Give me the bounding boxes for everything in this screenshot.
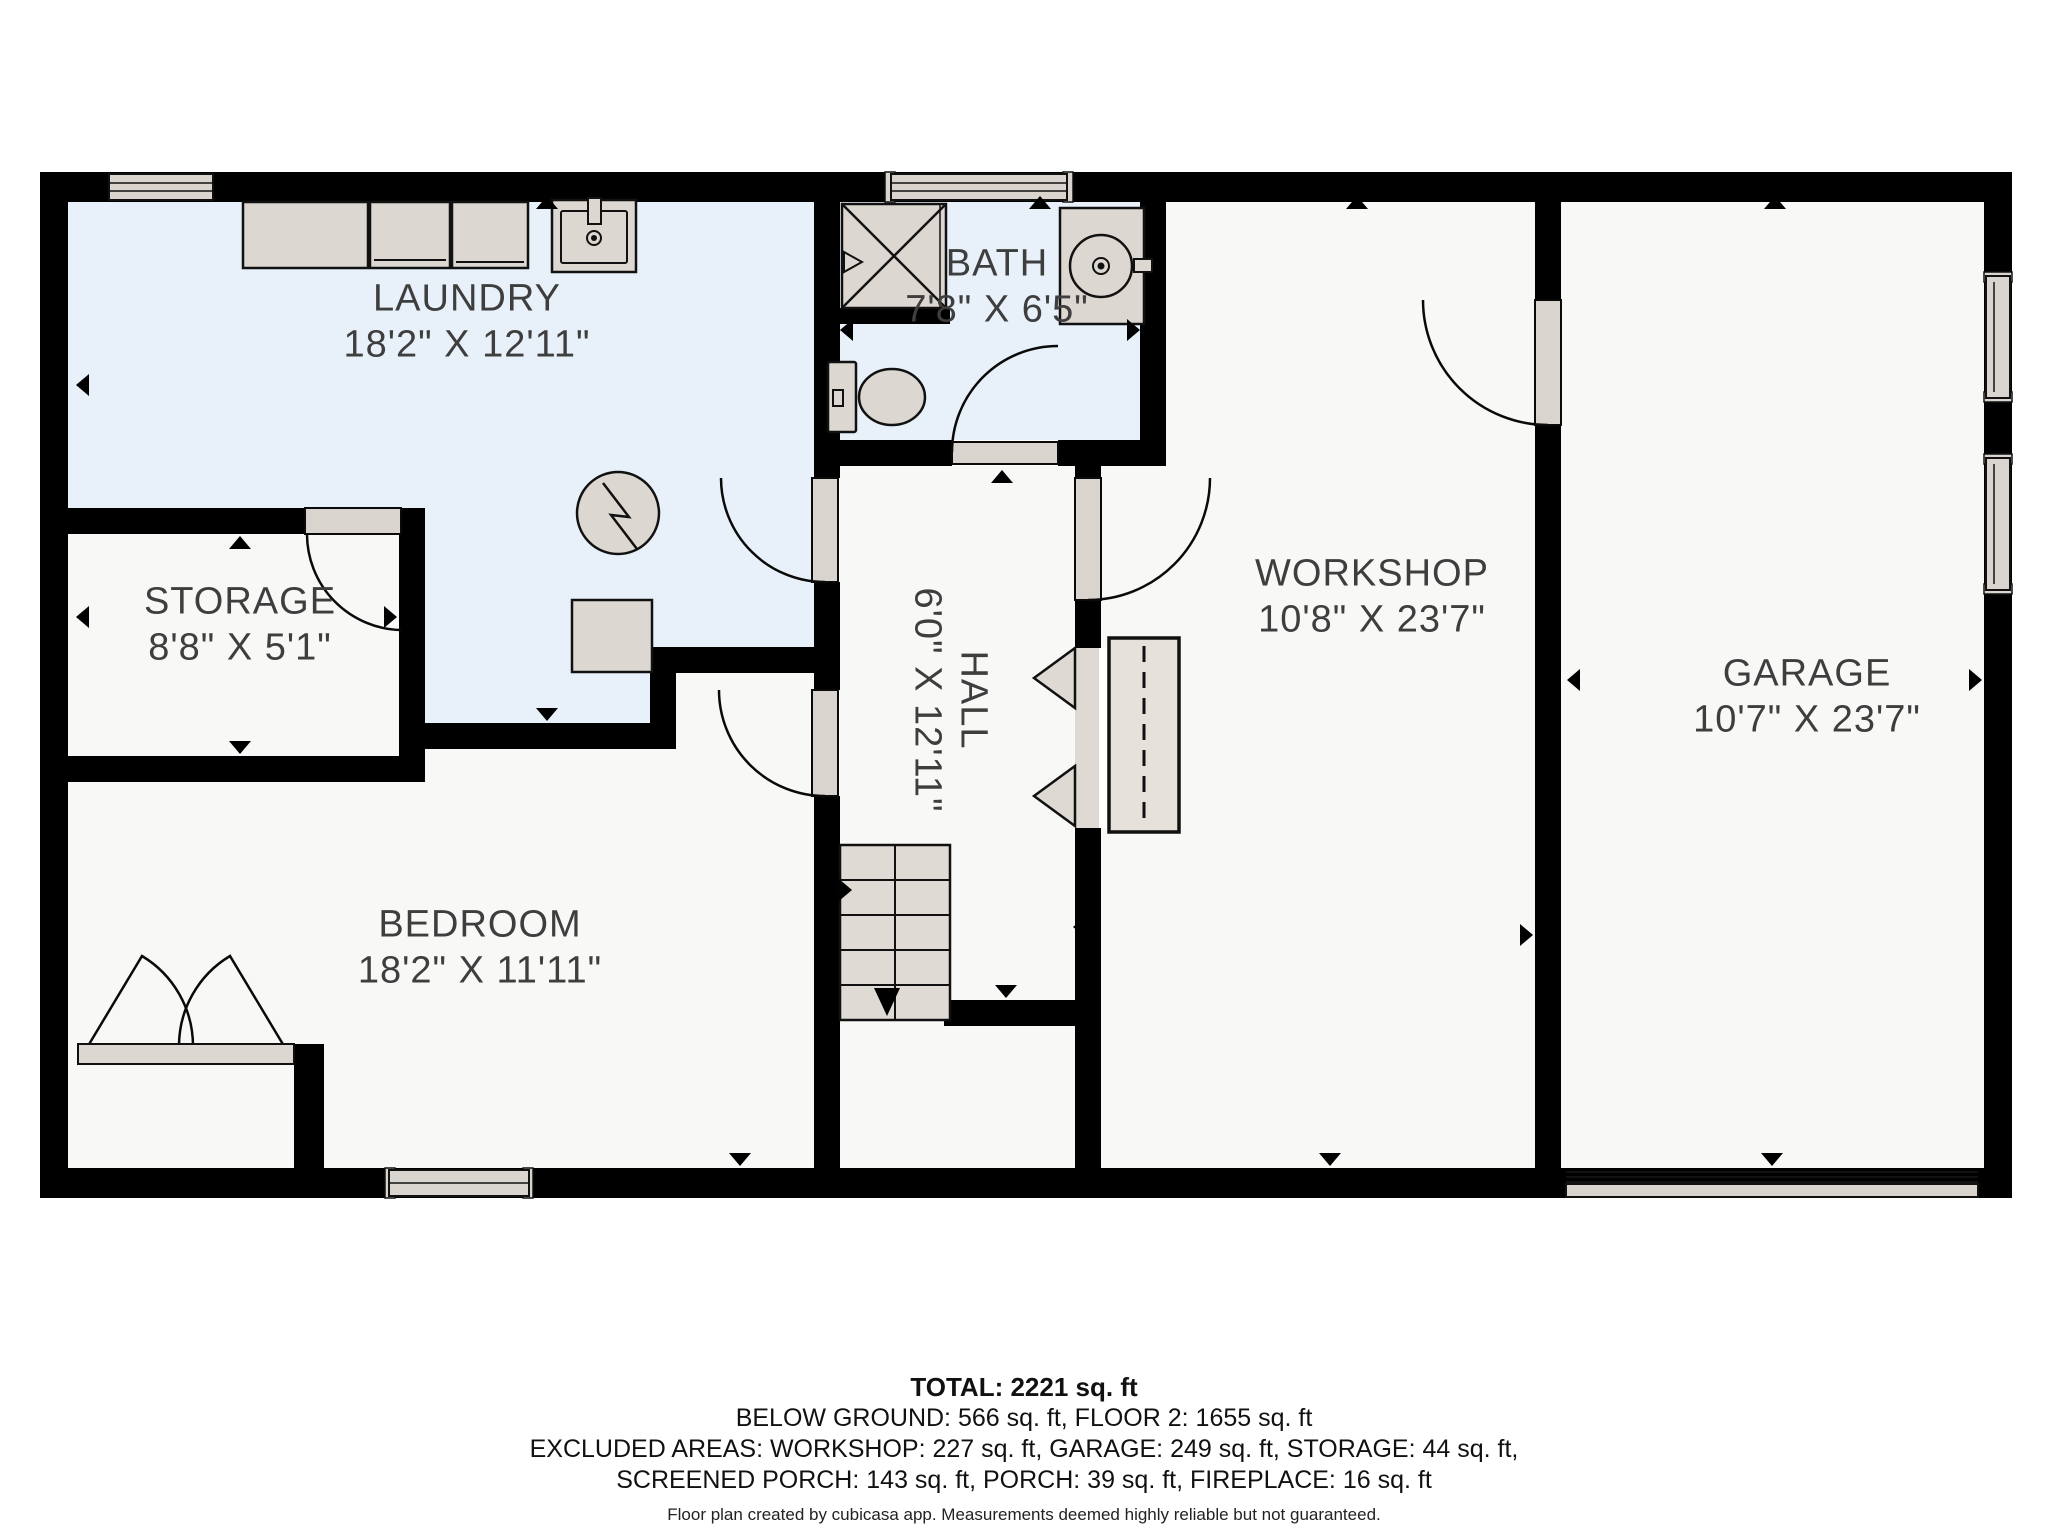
room-dims: 7'8" X 6'5" bbox=[905, 287, 1088, 333]
room-dims: 6'0" X 12'11" bbox=[904, 588, 950, 813]
stairs bbox=[840, 845, 950, 1020]
disclaimer-text: Floor plan created by cubicasa app. Meas… bbox=[0, 1505, 2048, 1525]
room-label-laundry: LAUNDRY 18'2" X 12'11" bbox=[343, 276, 590, 369]
room-name: GARAGE bbox=[1693, 651, 1921, 697]
laundry-sink bbox=[552, 198, 636, 272]
room-name: STORAGE bbox=[144, 579, 336, 625]
room-name: BEDROOM bbox=[358, 902, 602, 948]
garage-window-upper bbox=[1984, 272, 2012, 402]
closet-shelf bbox=[78, 1044, 294, 1064]
room-label-garage: GARAGE 10'7" X 23'7" bbox=[1693, 651, 1921, 744]
dryer bbox=[452, 202, 528, 268]
laundry-window bbox=[109, 174, 213, 200]
room-label-bedroom: BEDROOM 18'2" X 11'11" bbox=[358, 902, 602, 995]
hall-floor bbox=[840, 466, 1075, 1168]
excluded-areas-text-2: SCREENED PORCH: 143 sq. ft, PORCH: 39 sq… bbox=[0, 1465, 2048, 1496]
room-dims: 18'2" X 12'11" bbox=[343, 322, 590, 368]
floorplan-drawing bbox=[0, 0, 2048, 1536]
floorplan-page: LAUNDRY 18'2" X 12'11" BATH 7'8" X 6'5" … bbox=[0, 0, 2048, 1536]
floors-area-text: BELOW GROUND: 566 sq. ft, FLOOR 2: 1655 … bbox=[0, 1403, 2048, 1434]
room-name: BATH bbox=[905, 241, 1088, 287]
area-summary: TOTAL: 2221 sq. ft BELOW GROUND: 566 sq.… bbox=[0, 1372, 2048, 1525]
room-dims: 10'8" X 23'7" bbox=[1255, 597, 1489, 643]
excluded-areas-text-1: EXCLUDED AREAS: WORKSHOP: 227 sq. ft, GA… bbox=[0, 1434, 2048, 1465]
room-name: LAUNDRY bbox=[343, 276, 590, 322]
water-heater bbox=[577, 472, 659, 554]
room-dims: 8'8" X 5'1" bbox=[144, 625, 336, 671]
bath-window bbox=[885, 172, 1073, 202]
room-label-storage: STORAGE 8'8" X 5'1" bbox=[144, 579, 336, 672]
room-dims: 18'2" X 11'11" bbox=[358, 948, 602, 994]
garage-window-lower bbox=[1984, 454, 2012, 594]
toilet bbox=[828, 362, 925, 432]
total-area-text: TOTAL: 2221 sq. ft bbox=[0, 1372, 2048, 1403]
washer bbox=[370, 202, 450, 268]
room-dims: 10'7" X 23'7" bbox=[1693, 697, 1921, 743]
laundry-counter bbox=[243, 202, 368, 268]
room-name: WORKSHOP bbox=[1255, 551, 1489, 597]
room-label-bath: BATH 7'8" X 6'5" bbox=[905, 241, 1088, 334]
room-label-workshop: WORKSHOP 10'8" X 23'7" bbox=[1255, 551, 1489, 644]
room-label-hall: HALL 6'0" X 12'11" bbox=[904, 588, 997, 813]
bedroom-window bbox=[385, 1168, 533, 1198]
laundry-cabinet bbox=[572, 600, 652, 672]
room-name: HALL bbox=[950, 588, 996, 813]
